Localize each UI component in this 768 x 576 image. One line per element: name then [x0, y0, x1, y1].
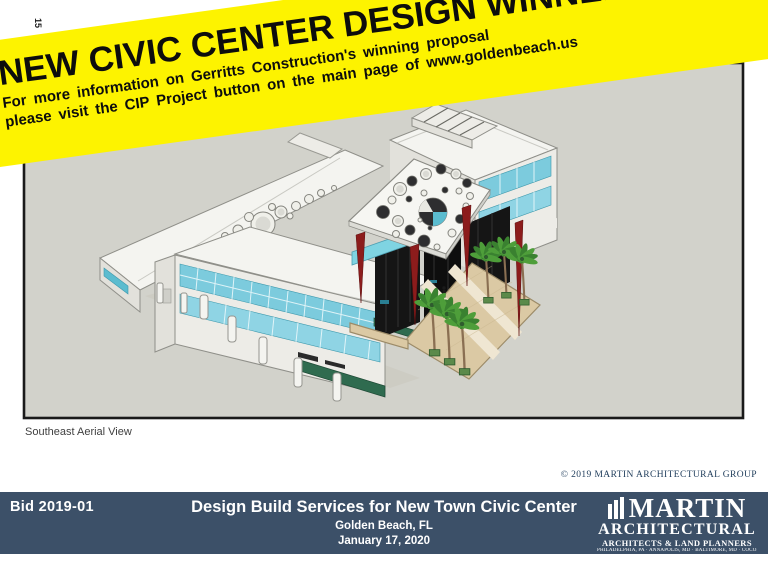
view-caption: Southeast Aerial View [25, 426, 132, 438]
presentation-slide: Southeast Aerial View 15 NEW CIVIC CENTE… [0, 0, 768, 576]
logo-cities: PHILADELPHIA, PA · ANNAPOLIS, MD · BALTI… [597, 548, 757, 554]
copyright-notice: © 2019 MARTIN ARCHITECTURAL GROUP [561, 470, 757, 480]
logo-tagline: ARCHITECTS & LAND PLANNERS [597, 538, 757, 548]
martin-architectural-logo: MARTIN ARCHITECTURAL ARCHITECTS & LAND P… [597, 495, 757, 554]
page-number: 15 [33, 18, 43, 28]
logo-subname: ARCHITECTURAL [597, 522, 757, 537]
logo-name: MARTIN [629, 495, 747, 521]
logo-bars-icon [608, 497, 624, 519]
footer-bar: Bid 2019-01 Design Build Services for Ne… [0, 492, 768, 554]
